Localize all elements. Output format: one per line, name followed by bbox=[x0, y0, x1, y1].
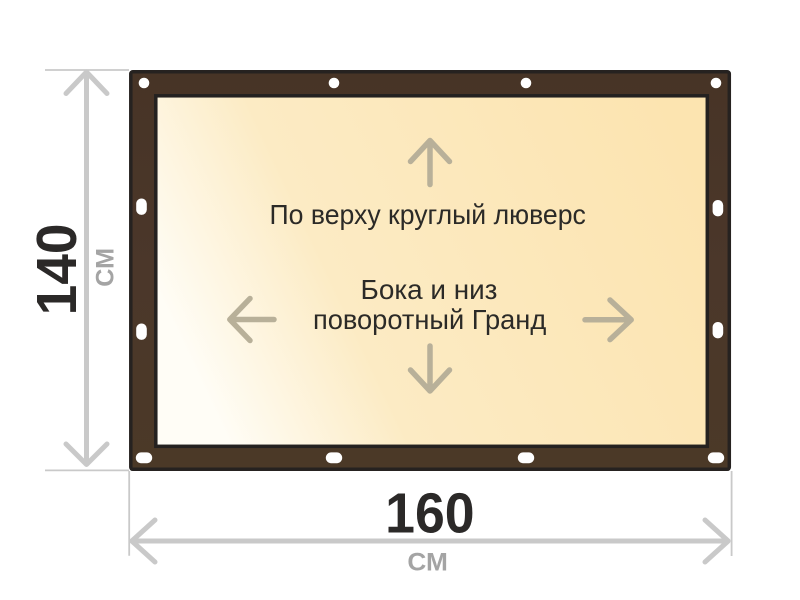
svg-text:140: 140 bbox=[25, 223, 89, 315]
svg-text:СМ: СМ bbox=[407, 549, 448, 577]
svg-text:160: 160 bbox=[385, 482, 475, 546]
svg-text:Бока и низ: Бока и низ bbox=[361, 274, 498, 305]
svg-text:поворотный Гранд: поворотный Гранд bbox=[313, 304, 546, 335]
svg-text:По верху круглый люверс: По верху круглый люверс bbox=[270, 199, 586, 230]
svg-text:СМ: СМ bbox=[92, 248, 120, 287]
